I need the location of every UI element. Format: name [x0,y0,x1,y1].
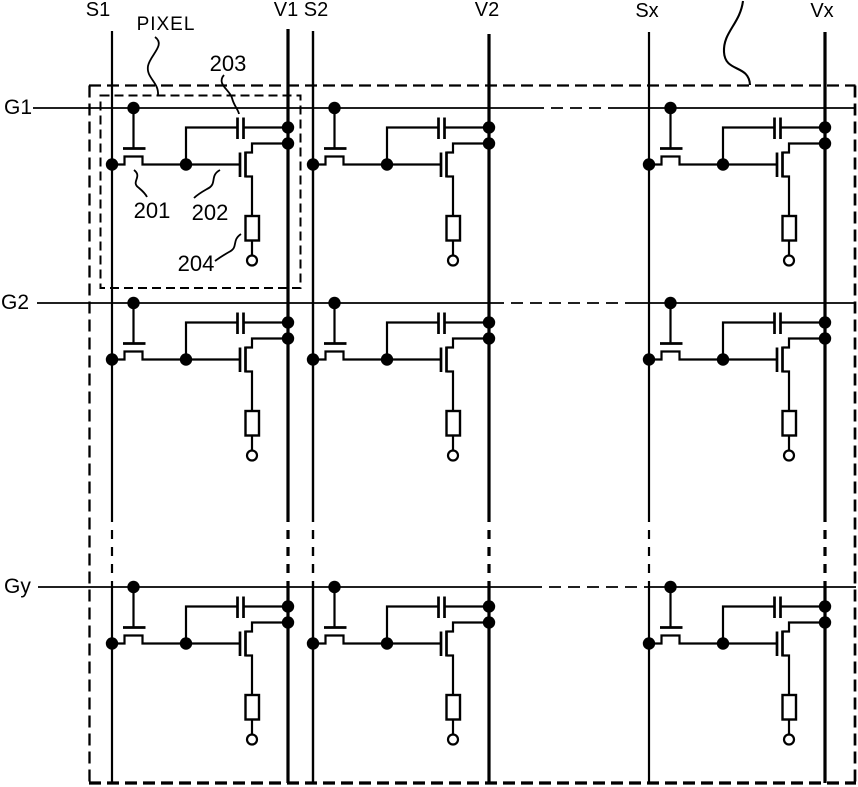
ref-201-leader-line [134,170,147,197]
pixel-cell-r1cx [643,102,831,266]
pixel-cell-ryc2 [307,581,495,745]
pixel-cell-ryc1 [106,581,294,745]
column-label-s1: S1 [86,0,110,21]
figure-canvas: S1 V1 S2 V2 Sx Vx G1 G2 Gy PIXEL 201 202… [0,0,858,787]
row-label-gy: Gy [4,575,31,598]
column-label-v2: V2 [475,0,499,21]
pixel-cell-r1c2 [307,102,495,266]
pixel-cell-r2cx [643,297,831,461]
ref-201-label: 201 [134,198,171,223]
row-label-g1: G1 [4,96,32,119]
column-label-sx: Sx [635,0,658,22]
pixel-array-schematic: S1 V1 S2 V2 Sx Vx G1 G2 Gy PIXEL 201 202… [0,0,858,787]
ref-202-leader-line [194,170,220,198]
ref-204-leader-line [215,234,241,261]
ref-202-label: 202 [192,200,229,225]
array-pointer-squiggle [724,1,750,85]
column-label-v1: V1 [274,0,298,21]
pixel-cell-r2c1 [106,297,294,461]
pixel-cell-r2c2 [307,297,495,461]
pixel-cell-r1c1 [106,102,294,266]
ref-203-label: 203 [210,51,247,76]
column-label-s2: S2 [304,0,328,21]
row-label-g2: G2 [1,291,29,314]
pixel-callout-label: PIXEL [137,14,196,35]
pixel-cell-rycx [643,581,831,745]
column-label-vx: Vx [810,0,833,22]
ref-204-label: 204 [178,251,215,276]
